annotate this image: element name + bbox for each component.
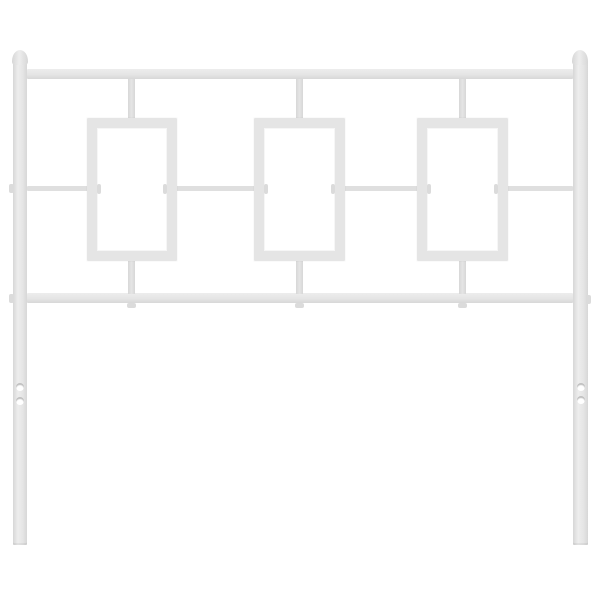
frame-center-inner-nub-right xyxy=(331,184,335,194)
bottom-connector-right xyxy=(459,260,466,294)
left-leg-hole-upper xyxy=(16,383,24,391)
tab-below-rail-center xyxy=(295,303,304,308)
left-post-nub-mid xyxy=(9,184,14,193)
middle-rail-segment-1 xyxy=(27,186,89,191)
left-post-nub-bottom xyxy=(9,294,14,303)
right-post-nub-bottom xyxy=(586,295,591,304)
bottom-connector-center xyxy=(296,260,303,294)
middle-rail-segment-2 xyxy=(175,186,256,191)
left-finial xyxy=(12,50,28,65)
bottom-rail xyxy=(27,293,573,303)
middle-rail-segment-3 xyxy=(343,186,419,191)
left-post xyxy=(13,60,27,545)
frame-right-inner-nub-left xyxy=(427,184,431,194)
bottom-connector-left xyxy=(128,260,135,294)
frame-left-inner-nub-right xyxy=(163,184,167,194)
right-leg-hole-upper xyxy=(577,383,585,391)
top-connector-right xyxy=(459,79,466,119)
middle-rail-segment-4 xyxy=(506,186,573,191)
left-leg-hole-lower xyxy=(16,397,24,405)
product-photo-stage xyxy=(0,0,600,600)
right-leg-hole-lower xyxy=(577,396,585,404)
frame-right-inner-nub-right xyxy=(494,184,498,194)
frame-center-inner-nub-left xyxy=(264,184,268,194)
top-rail xyxy=(27,69,573,79)
top-connector-left xyxy=(128,79,135,119)
tab-below-rail-left xyxy=(127,303,136,308)
tab-below-rail-right xyxy=(458,303,467,308)
top-connector-center xyxy=(296,79,303,119)
frame-left-inner-nub-left xyxy=(97,184,101,194)
right-finial xyxy=(572,50,588,65)
headboard-image xyxy=(0,0,600,600)
